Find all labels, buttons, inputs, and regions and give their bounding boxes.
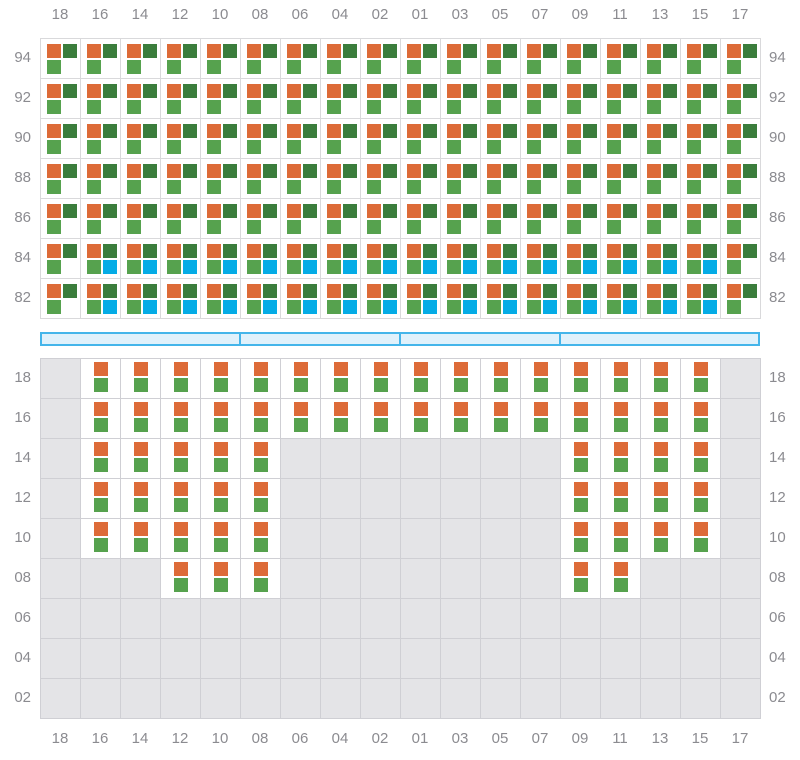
orange-square-icon	[574, 402, 588, 416]
berth-cell[interactable]	[641, 159, 681, 199]
dark-green-square-icon	[463, 284, 477, 298]
berth-indicator-group	[567, 164, 600, 194]
dark-green-square-icon	[263, 124, 277, 138]
light-green-square-icon	[487, 180, 501, 194]
top-column-label: 14	[120, 0, 160, 30]
light-green-square-icon	[527, 60, 541, 74]
berth-cell[interactable]	[401, 279, 441, 319]
berth-cell[interactable]	[41, 79, 81, 119]
light-green-square-icon	[254, 458, 268, 472]
empty-cell	[441, 519, 481, 559]
dark-green-square-icon	[383, 164, 397, 178]
berth-cell[interactable]	[681, 39, 721, 79]
berth-cell[interactable]	[161, 199, 201, 239]
berth-cell[interactable]	[601, 119, 641, 159]
berth-cell[interactable]	[161, 519, 201, 559]
orange-square-icon	[687, 164, 701, 178]
berth-cell[interactable]	[361, 279, 401, 319]
berth-cell[interactable]	[521, 39, 561, 79]
berth-cell[interactable]	[641, 199, 681, 239]
berth-cell[interactable]	[481, 359, 521, 399]
dark-green-square-icon	[143, 244, 157, 258]
berth-indicator-group	[407, 244, 440, 274]
light-green-square-icon	[294, 418, 308, 432]
berth-indicator-group	[521, 399, 560, 432]
berth-cell[interactable]	[201, 119, 241, 159]
berth-cell[interactable]	[81, 199, 121, 239]
berth-indicator-group	[247, 244, 280, 274]
empty-cell	[201, 639, 241, 679]
berth-cell[interactable]	[441, 279, 481, 319]
berth-cell[interactable]	[721, 39, 761, 79]
light-green-square-icon	[174, 498, 188, 512]
berth-indicator-group	[161, 359, 200, 392]
berth-cell[interactable]	[561, 159, 601, 199]
berth-cell[interactable]	[681, 279, 721, 319]
berth-cell[interactable]	[361, 39, 401, 79]
berth-cell[interactable]	[321, 39, 361, 79]
berth-cell[interactable]	[201, 519, 241, 559]
berth-cell[interactable]	[241, 279, 281, 319]
light-green-square-icon	[407, 300, 421, 314]
berth-cell[interactable]	[561, 39, 601, 79]
bottom-column-label: 10	[200, 718, 240, 760]
berth-cell[interactable]	[561, 79, 601, 119]
berth-cell[interactable]	[481, 399, 521, 439]
berth-indicator-group	[167, 124, 200, 154]
light-green-square-icon	[447, 300, 461, 314]
berth-indicator-group	[641, 479, 680, 512]
berth-cell[interactable]	[81, 399, 121, 439]
berth-cell[interactable]	[281, 399, 321, 439]
berth-cell[interactable]	[201, 399, 241, 439]
berth-cell[interactable]	[441, 239, 481, 279]
dark-green-square-icon	[63, 164, 77, 178]
berth-cell[interactable]	[41, 239, 81, 279]
berth-cell[interactable]	[121, 279, 161, 319]
dark-green-square-icon	[303, 284, 317, 298]
berth-cell[interactable]	[601, 79, 641, 119]
berth-cell[interactable]	[81, 79, 121, 119]
berth-cell[interactable]	[561, 519, 601, 559]
berth-cell[interactable]	[81, 239, 121, 279]
berth-cell[interactable]	[161, 399, 201, 439]
berth-cell[interactable]	[641, 39, 681, 79]
berth-cell[interactable]	[81, 39, 121, 79]
dark-green-square-icon	[343, 124, 357, 138]
berth-indicator-group	[727, 204, 760, 234]
berth-cell[interactable]	[361, 239, 401, 279]
berth-cell[interactable]	[681, 119, 721, 159]
light-green-square-icon	[167, 300, 181, 314]
berth-cell[interactable]	[481, 279, 521, 319]
berth-cell[interactable]	[321, 159, 361, 199]
berth-cell[interactable]	[681, 399, 721, 439]
berth-cell[interactable]	[81, 159, 121, 199]
light-green-square-icon	[47, 180, 61, 194]
berth-cell[interactable]	[241, 519, 281, 559]
berth-cell[interactable]	[321, 359, 361, 399]
row-label: 04	[763, 638, 800, 678]
berth-cell[interactable]	[641, 439, 681, 479]
empty-cell	[521, 439, 561, 479]
berth-cell[interactable]	[161, 239, 201, 279]
berth-cell[interactable]	[321, 279, 361, 319]
berth-cell[interactable]	[121, 399, 161, 439]
empty-cell	[401, 439, 441, 479]
berth-cell[interactable]	[441, 119, 481, 159]
berth-cell[interactable]	[281, 79, 321, 119]
berth-cell[interactable]	[201, 239, 241, 279]
berth-cell[interactable]	[41, 119, 81, 159]
berth-cell[interactable]	[601, 519, 641, 559]
light-green-square-icon	[414, 378, 428, 392]
berth-cell[interactable]	[81, 479, 121, 519]
berth-cell[interactable]	[681, 239, 721, 279]
berth-cell[interactable]	[681, 359, 721, 399]
berth-cell[interactable]	[241, 39, 281, 79]
berth-cell[interactable]	[161, 39, 201, 79]
empty-cell	[201, 679, 241, 719]
dark-green-square-icon	[343, 204, 357, 218]
berth-cell[interactable]	[281, 159, 321, 199]
empty-cell	[361, 519, 401, 559]
berth-cell[interactable]	[121, 479, 161, 519]
berth-indicator-group	[241, 479, 280, 512]
orange-square-icon	[527, 124, 541, 138]
berth-indicator-group	[287, 284, 320, 314]
berth-indicator-group	[647, 244, 680, 274]
berth-cell[interactable]	[201, 79, 241, 119]
berth-cell[interactable]	[561, 279, 601, 319]
berth-cell[interactable]	[41, 159, 81, 199]
berth-cell[interactable]	[121, 199, 161, 239]
berth-cell[interactable]	[641, 239, 681, 279]
dark-green-square-icon	[303, 204, 317, 218]
berth-cell[interactable]	[561, 439, 601, 479]
berth-cell[interactable]	[481, 239, 521, 279]
orange-square-icon	[47, 164, 61, 178]
berth-cell[interactable]	[721, 159, 761, 199]
dark-green-square-icon	[743, 44, 757, 58]
orange-square-icon	[367, 204, 381, 218]
berth-cell[interactable]	[521, 399, 561, 439]
berth-indicator-group	[367, 284, 400, 314]
berth-cell[interactable]	[561, 119, 601, 159]
berth-cell[interactable]	[721, 119, 761, 159]
berth-cell[interactable]	[401, 359, 441, 399]
light-green-square-icon	[727, 100, 741, 114]
row-label: 82	[0, 278, 38, 318]
orange-square-icon	[87, 164, 101, 178]
berth-indicator-group	[487, 204, 520, 234]
berth-cell[interactable]	[561, 239, 601, 279]
berth-cell[interactable]	[121, 359, 161, 399]
berth-cell[interactable]	[201, 479, 241, 519]
light-green-square-icon	[214, 578, 228, 592]
berth-cell[interactable]	[201, 559, 241, 599]
berth-cell[interactable]	[81, 279, 121, 319]
berth-cell[interactable]	[521, 159, 561, 199]
berth-cell[interactable]	[201, 199, 241, 239]
berth-cell[interactable]	[81, 359, 121, 399]
berth-cell[interactable]	[401, 79, 441, 119]
orange-square-icon	[327, 124, 341, 138]
orange-square-icon	[727, 44, 741, 58]
dark-green-square-icon	[503, 164, 517, 178]
berth-cell[interactable]	[481, 199, 521, 239]
row-label: 04	[0, 638, 38, 678]
berth-indicator-group	[367, 124, 400, 154]
berth-cell[interactable]	[161, 79, 201, 119]
berth-cell[interactable]	[121, 79, 161, 119]
berth-cell[interactable]	[401, 39, 441, 79]
berth-cell[interactable]	[601, 359, 641, 399]
berth-cell[interactable]	[601, 159, 641, 199]
berth-cell[interactable]	[561, 559, 601, 599]
orange-square-icon	[127, 44, 141, 58]
berth-cell[interactable]	[601, 199, 641, 239]
light-green-square-icon	[287, 100, 301, 114]
berth-indicator-group	[87, 124, 120, 154]
berth-indicator-group	[47, 44, 80, 74]
berth-cell[interactable]	[81, 119, 121, 159]
berth-cell[interactable]	[601, 39, 641, 79]
berth-cell[interactable]	[441, 359, 481, 399]
berth-cell[interactable]	[561, 479, 601, 519]
berth-cell[interactable]	[121, 439, 161, 479]
berth-cell[interactable]	[361, 399, 401, 439]
berth-cell[interactable]	[401, 159, 441, 199]
berth-cell[interactable]	[401, 239, 441, 279]
berth-cell[interactable]	[601, 559, 641, 599]
berth-cell[interactable]	[361, 79, 401, 119]
berth-cell[interactable]	[201, 39, 241, 79]
berth-cell[interactable]	[681, 199, 721, 239]
berth-cell[interactable]	[41, 279, 81, 319]
berth-cell[interactable]	[241, 239, 281, 279]
berth-cell[interactable]	[241, 399, 281, 439]
dark-green-square-icon	[503, 204, 517, 218]
berth-cell[interactable]	[281, 359, 321, 399]
berth-cell[interactable]	[161, 159, 201, 199]
light-green-square-icon	[87, 180, 101, 194]
berth-cell[interactable]	[121, 159, 161, 199]
berth-cell[interactable]	[441, 159, 481, 199]
berth-cell[interactable]	[121, 239, 161, 279]
berth-cell[interactable]	[441, 39, 481, 79]
top-axis: 181614121008060402010305070911131517	[40, 0, 760, 30]
blue-square-icon	[663, 300, 677, 314]
berth-cell[interactable]	[681, 479, 721, 519]
berth-cell[interactable]	[281, 239, 321, 279]
berth-cell[interactable]	[201, 159, 241, 199]
berth-cell[interactable]	[361, 359, 401, 399]
berth-cell[interactable]	[441, 199, 481, 239]
light-green-square-icon	[167, 220, 181, 234]
berth-cell[interactable]	[361, 159, 401, 199]
berth-cell[interactable]	[161, 279, 201, 319]
berth-cell[interactable]	[241, 159, 281, 199]
berth-cell[interactable]	[241, 479, 281, 519]
berth-cell[interactable]	[721, 199, 761, 239]
berth-cell[interactable]	[41, 199, 81, 239]
berth-cell[interactable]	[601, 479, 641, 519]
empty-cell	[641, 599, 681, 639]
row-label: 12	[0, 478, 38, 518]
dark-green-square-icon	[503, 124, 517, 138]
berth-indicator-group	[241, 399, 280, 432]
dark-green-square-icon	[103, 44, 117, 58]
berth-indicator-group	[407, 84, 440, 114]
berth-cell[interactable]	[321, 239, 361, 279]
berth-cell[interactable]	[41, 39, 81, 79]
berth-cell[interactable]	[641, 279, 681, 319]
light-green-square-icon	[254, 578, 268, 592]
berth-indicator-group	[561, 359, 600, 392]
berth-cell[interactable]	[641, 479, 681, 519]
berth-cell[interactable]	[401, 119, 441, 159]
top-column-label: 17	[720, 0, 760, 30]
light-green-square-icon	[647, 260, 661, 274]
berth-cell[interactable]	[201, 359, 241, 399]
light-green-square-icon	[567, 100, 581, 114]
berth-indicator-group	[681, 399, 720, 432]
berth-cell[interactable]	[201, 439, 241, 479]
dark-green-square-icon	[423, 244, 437, 258]
berth-cell[interactable]	[681, 159, 721, 199]
blue-square-icon	[263, 260, 277, 274]
berth-cell[interactable]	[121, 119, 161, 159]
berth-cell[interactable]	[561, 199, 601, 239]
dark-green-square-icon	[63, 244, 77, 258]
berth-cell[interactable]	[641, 519, 681, 559]
berth-cell[interactable]	[521, 119, 561, 159]
berth-indicator-group	[327, 44, 360, 74]
berth-cell[interactable]	[601, 439, 641, 479]
orange-square-icon	[687, 284, 701, 298]
berth-cell[interactable]	[481, 159, 521, 199]
berth-cell[interactable]	[641, 399, 681, 439]
empty-cell	[361, 439, 401, 479]
row-label: 14	[0, 438, 38, 478]
empty-cell	[721, 559, 761, 599]
berth-cell[interactable]	[361, 199, 401, 239]
berth-cell[interactable]	[481, 39, 521, 79]
berth-cell[interactable]	[721, 279, 761, 319]
berth-cell[interactable]	[161, 119, 201, 159]
berth-cell[interactable]	[161, 359, 201, 399]
berth-cell[interactable]	[281, 119, 321, 159]
light-green-square-icon	[614, 578, 628, 592]
light-green-square-icon	[327, 60, 341, 74]
top-column-label: 07	[520, 0, 560, 30]
berth-cell[interactable]	[721, 239, 761, 279]
berth-cell[interactable]	[601, 279, 641, 319]
berth-cell[interactable]	[401, 399, 441, 439]
berth-cell[interactable]	[641, 359, 681, 399]
berth-cell[interactable]	[121, 39, 161, 79]
berth-cell[interactable]	[601, 239, 641, 279]
empty-cell	[81, 639, 121, 679]
berth-cell[interactable]	[561, 399, 601, 439]
light-green-square-icon	[614, 458, 628, 472]
berth-cell[interactable]	[441, 399, 481, 439]
dark-green-square-icon	[623, 164, 637, 178]
berth-cell[interactable]	[401, 199, 441, 239]
berth-cell[interactable]	[521, 199, 561, 239]
berth-cell[interactable]	[481, 79, 521, 119]
berth-cell[interactable]	[321, 119, 361, 159]
berth-cell[interactable]	[521, 359, 561, 399]
berth-cell[interactable]	[561, 359, 601, 399]
berth-cell[interactable]	[441, 79, 481, 119]
berth-cell[interactable]	[241, 119, 281, 159]
orange-square-icon	[487, 284, 501, 298]
empty-cell	[441, 599, 481, 639]
berth-cell[interactable]	[161, 479, 201, 519]
light-green-square-icon	[574, 498, 588, 512]
berth-cell[interactable]	[241, 79, 281, 119]
orange-square-icon	[167, 284, 181, 298]
berth-cell[interactable]	[281, 39, 321, 79]
berth-cell[interactable]	[361, 119, 401, 159]
berth-cell[interactable]	[241, 199, 281, 239]
berth-cell[interactable]	[121, 519, 161, 559]
empty-cell	[521, 599, 561, 639]
berth-cell[interactable]	[681, 79, 721, 119]
berth-cell[interactable]	[201, 279, 241, 319]
light-green-square-icon	[647, 140, 661, 154]
berth-cell[interactable]	[321, 79, 361, 119]
berth-cell[interactable]	[601, 399, 641, 439]
berth-cell[interactable]	[241, 559, 281, 599]
berth-indicator-group	[487, 124, 520, 154]
berth-indicator-group	[567, 244, 600, 274]
berth-cell[interactable]	[81, 439, 121, 479]
berth-cell[interactable]	[521, 239, 561, 279]
berth-cell[interactable]	[81, 519, 121, 559]
berth-indicator-group	[687, 284, 720, 314]
light-green-square-icon	[527, 140, 541, 154]
berth-cell[interactable]	[521, 279, 561, 319]
berth-cell[interactable]	[321, 199, 361, 239]
berth-cell[interactable]	[681, 439, 721, 479]
berth-cell[interactable]	[321, 399, 361, 439]
dark-green-square-icon	[583, 284, 597, 298]
berth-cell[interactable]	[641, 119, 681, 159]
berth-cell[interactable]	[521, 79, 561, 119]
light-green-square-icon	[167, 140, 181, 154]
dark-green-square-icon	[183, 44, 197, 58]
orange-square-icon	[527, 244, 541, 258]
empty-cell	[681, 639, 721, 679]
berth-cell[interactable]	[481, 119, 521, 159]
blue-square-icon	[183, 300, 197, 314]
orange-square-icon	[287, 84, 301, 98]
berth-cell[interactable]	[241, 439, 281, 479]
orange-square-icon	[407, 84, 421, 98]
berth-cell[interactable]	[281, 279, 321, 319]
berth-indicator-group	[241, 359, 280, 392]
berth-cell[interactable]	[241, 359, 281, 399]
berth-cell[interactable]	[721, 79, 761, 119]
berth-cell[interactable]	[281, 199, 321, 239]
berth-cell[interactable]	[681, 519, 721, 559]
berth-cell[interactable]	[161, 559, 201, 599]
berth-cell[interactable]	[641, 79, 681, 119]
berth-cell[interactable]	[161, 439, 201, 479]
